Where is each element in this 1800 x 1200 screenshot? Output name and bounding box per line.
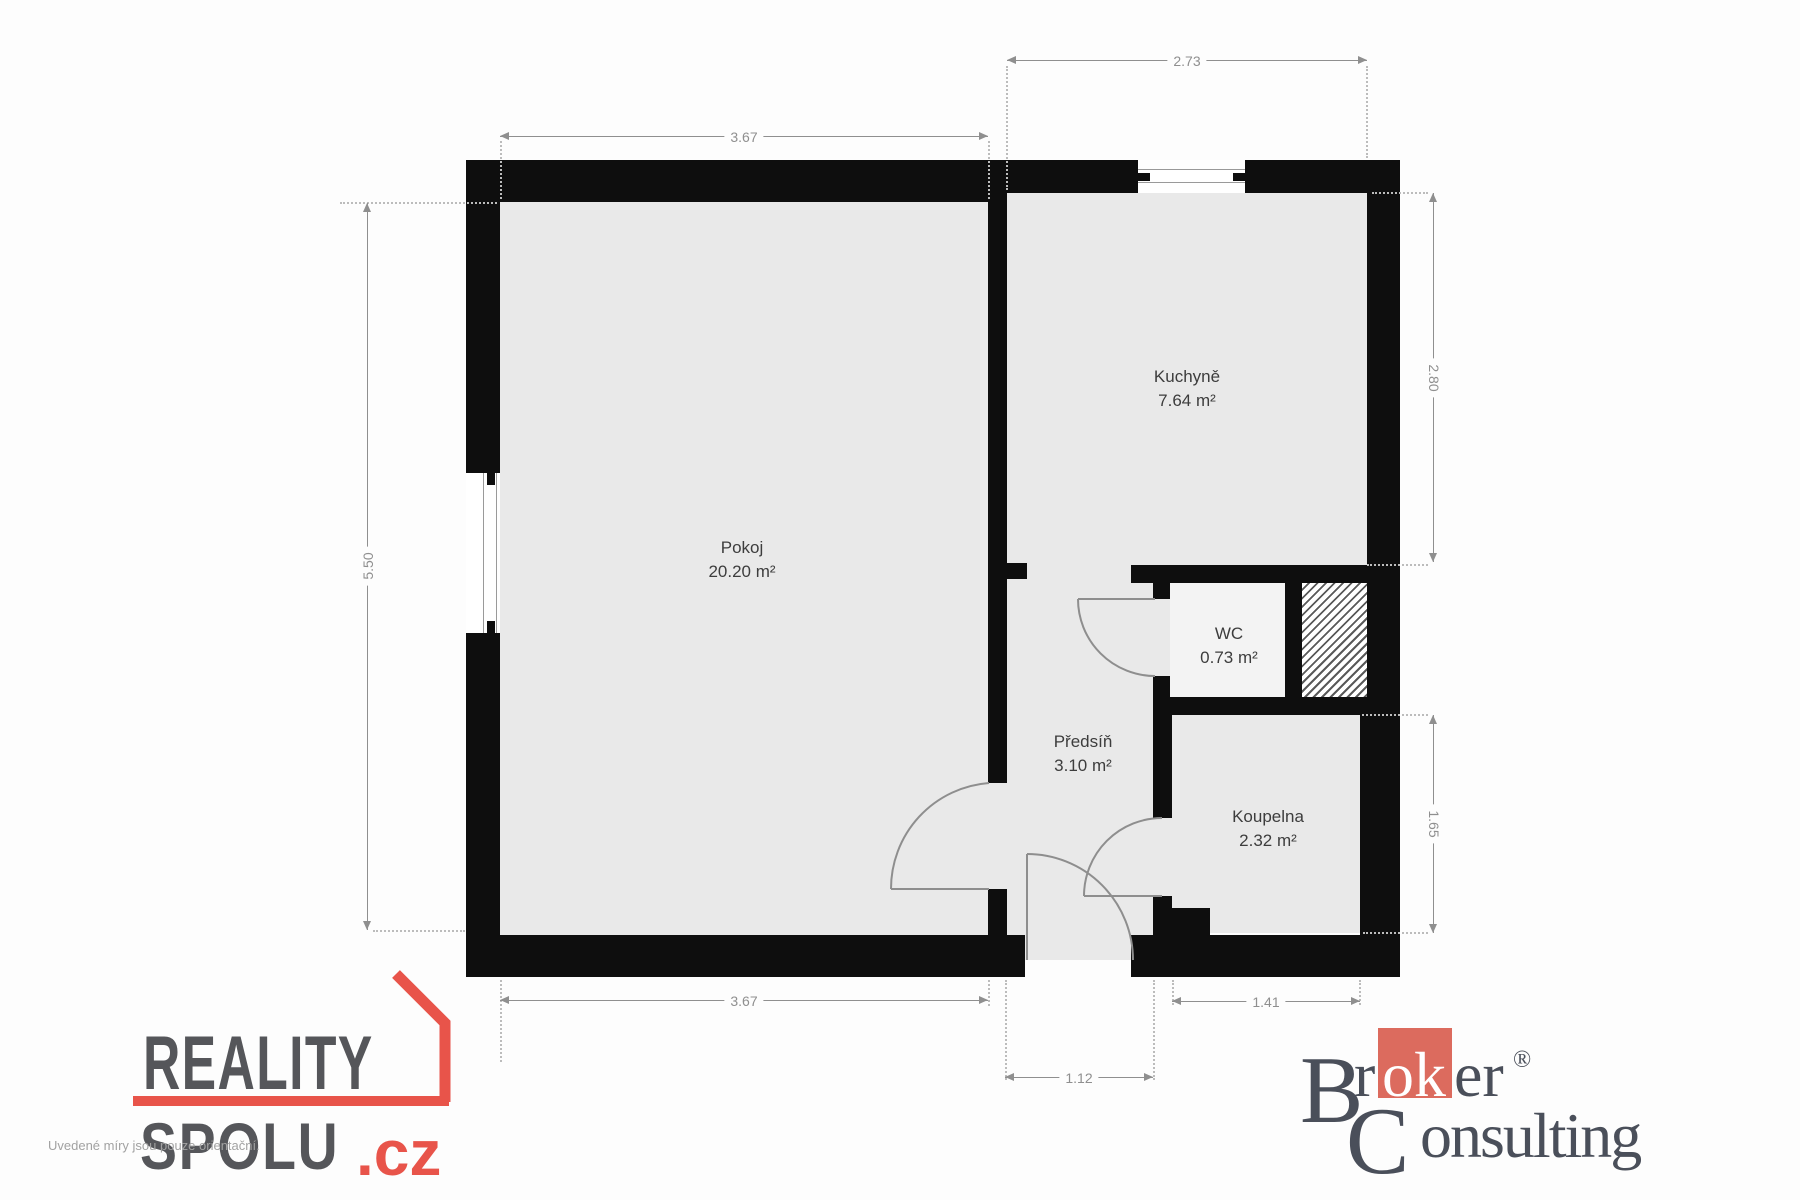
room-area: 2.32 m²: [1232, 829, 1304, 853]
room-area: 0.73 m²: [1200, 646, 1258, 670]
door-wc-arc: [1078, 599, 1155, 676]
broker-roker-er: er: [1454, 1043, 1504, 1107]
dim-label-bathroom-height: 1.65: [1425, 804, 1443, 843]
dim-label-kitchen-height: 2.80: [1425, 358, 1443, 397]
door-pokoj-arc: [891, 783, 989, 889]
room-area: 7.64 m²: [1154, 389, 1220, 413]
room-label-koupelna: Koupelna 2.32 m²: [1232, 805, 1304, 853]
room-area: 3.10 m²: [1054, 754, 1113, 778]
room-label-predsin: Předsíň 3.10 m²: [1054, 730, 1113, 778]
room-name: Koupelna: [1232, 805, 1304, 829]
dim-label-bathroom-width: 1.41: [1246, 993, 1285, 1011]
reality-spolu-word1: REALITY: [143, 1026, 374, 1102]
reality-spolu-underline: [133, 1096, 449, 1106]
broker-registered-icon: ®: [1513, 1048, 1531, 1072]
reality-spolu-tld: .cz: [356, 1121, 441, 1185]
dim-label-room-width-top: 3.67: [724, 128, 763, 146]
room-name: Předsíň: [1054, 730, 1113, 754]
room-name: Kuchyně: [1154, 365, 1220, 389]
room-label-kuchyne: Kuchyně 7.64 m²: [1154, 365, 1220, 413]
room-area: 20.20 m²: [708, 560, 775, 584]
dim-label-kitchen-width: 2.73: [1167, 52, 1206, 70]
door-koupelna-arc: [1084, 818, 1162, 896]
disclaimer-text: Uvedené míry jsou pouze orientační.: [48, 1138, 260, 1153]
door-swings-layer: [0, 0, 1800, 1200]
room-label-pokoj: Pokoj 20.20 m²: [708, 536, 775, 584]
dim-label-room-width-bottom: 3.67: [724, 992, 763, 1010]
floorplan-page: 2.73 3.67 5.50 2.80 1.65 3.67 1.41 1.12 …: [0, 0, 1800, 1200]
room-label-wc: WC 0.73 m²: [1200, 622, 1258, 670]
door-entrance-arc: [1027, 854, 1133, 960]
room-name: WC: [1200, 622, 1258, 646]
broker-onsulting: onsulting: [1420, 1104, 1640, 1168]
room-name: Pokoj: [708, 536, 775, 560]
dim-label-room-height: 5.50: [359, 546, 377, 585]
dim-label-entry-width: 1.12: [1059, 1069, 1098, 1087]
broker-roker-ok: ok: [1382, 1043, 1446, 1107]
